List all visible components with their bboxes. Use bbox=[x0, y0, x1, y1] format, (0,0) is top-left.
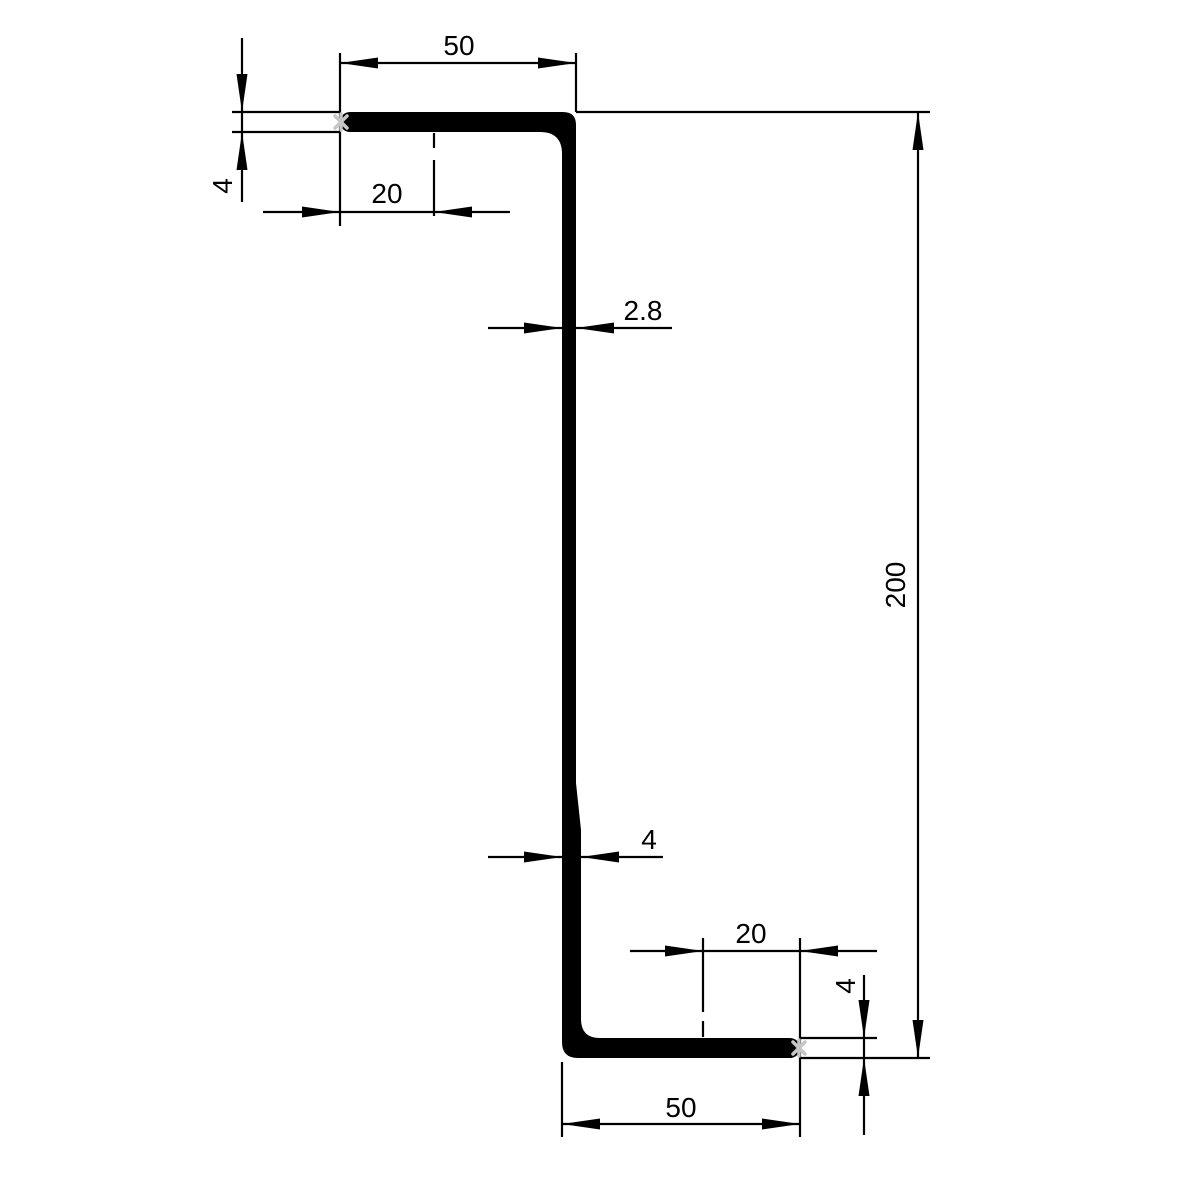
arrowhead-left bbox=[562, 1119, 600, 1130]
dim-top-lip-offset: 20 bbox=[263, 133, 510, 228]
dim-overall-height: 200 bbox=[576, 112, 930, 1058]
arrowhead-right bbox=[762, 1119, 800, 1130]
dimension-label-top-width: 50 bbox=[443, 30, 474, 61]
z-profile-drawing: 50 4 20 2.8 bbox=[0, 0, 1200, 1200]
dim-web-thickness-upper: 2.8 bbox=[488, 295, 672, 334]
dimension-label-top-lip: 20 bbox=[371, 178, 402, 209]
dimension-label-web-upper: 2.8 bbox=[624, 295, 663, 326]
arrowhead-right bbox=[524, 852, 562, 863]
arrowhead-left bbox=[800, 946, 838, 957]
dimension-label-bottom-thickness: 4 bbox=[830, 978, 861, 994]
dimension-label-web-lower: 4 bbox=[641, 824, 657, 855]
dimension-label-top-thickness: 4 bbox=[207, 178, 238, 194]
arrowhead-up bbox=[237, 132, 248, 170]
z-profile-section-outline bbox=[340, 112, 800, 1058]
arrowhead-right bbox=[302, 207, 340, 218]
arrowhead-down bbox=[913, 1020, 924, 1058]
arrowhead-up bbox=[859, 1058, 870, 1096]
dim-bottom-flange-thickness: 4 bbox=[800, 975, 877, 1135]
arrowhead-right bbox=[524, 323, 562, 334]
drawing-canvas: 50 4 20 2.8 bbox=[0, 0, 1200, 1200]
arrowhead-up bbox=[913, 112, 924, 150]
arrowhead-left bbox=[581, 852, 619, 863]
arrowhead-left bbox=[340, 58, 378, 69]
arrowhead-left bbox=[576, 323, 614, 334]
dim-top-flange-thickness: 4 bbox=[207, 38, 340, 202]
arrowhead-down bbox=[859, 1000, 870, 1038]
arrowhead-down bbox=[237, 74, 248, 112]
dimension-label-height: 200 bbox=[880, 562, 911, 609]
dimension-label-bottom-width: 50 bbox=[665, 1092, 696, 1123]
dimension-label-bottom-lip: 20 bbox=[735, 918, 766, 949]
arrowhead-left bbox=[434, 207, 472, 218]
arrowhead-right bbox=[538, 58, 576, 69]
arrowhead-right bbox=[665, 946, 703, 957]
dim-bottom-lip-offset: 20 bbox=[630, 918, 877, 1037]
dim-bottom-flange-width: 50 bbox=[562, 938, 800, 1137]
